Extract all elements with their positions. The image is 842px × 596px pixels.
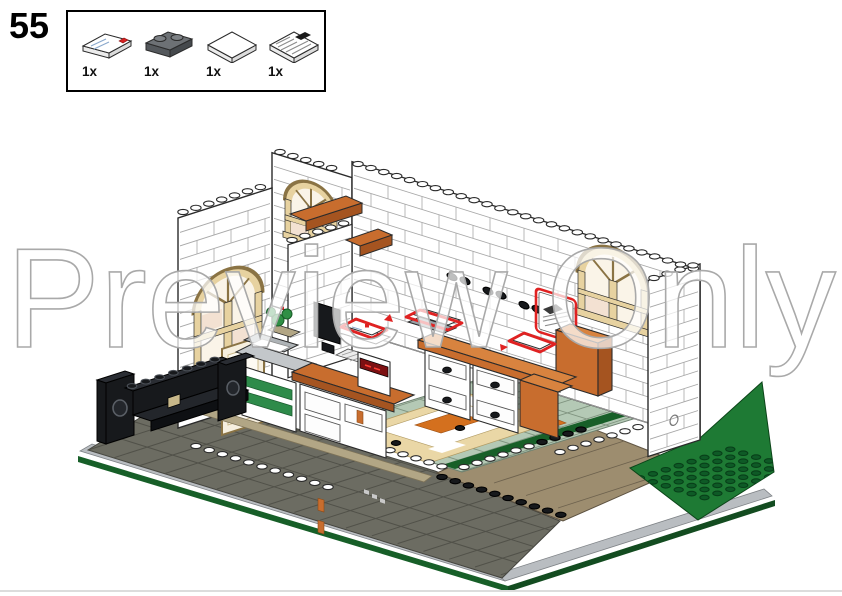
lego-model-illustration: Preview Only xyxy=(0,0,842,596)
page-bottom-rule xyxy=(0,590,842,592)
instruction-page: 55 1x 1x xyxy=(0,0,842,596)
watermark-text: Preview Only xyxy=(6,219,836,378)
